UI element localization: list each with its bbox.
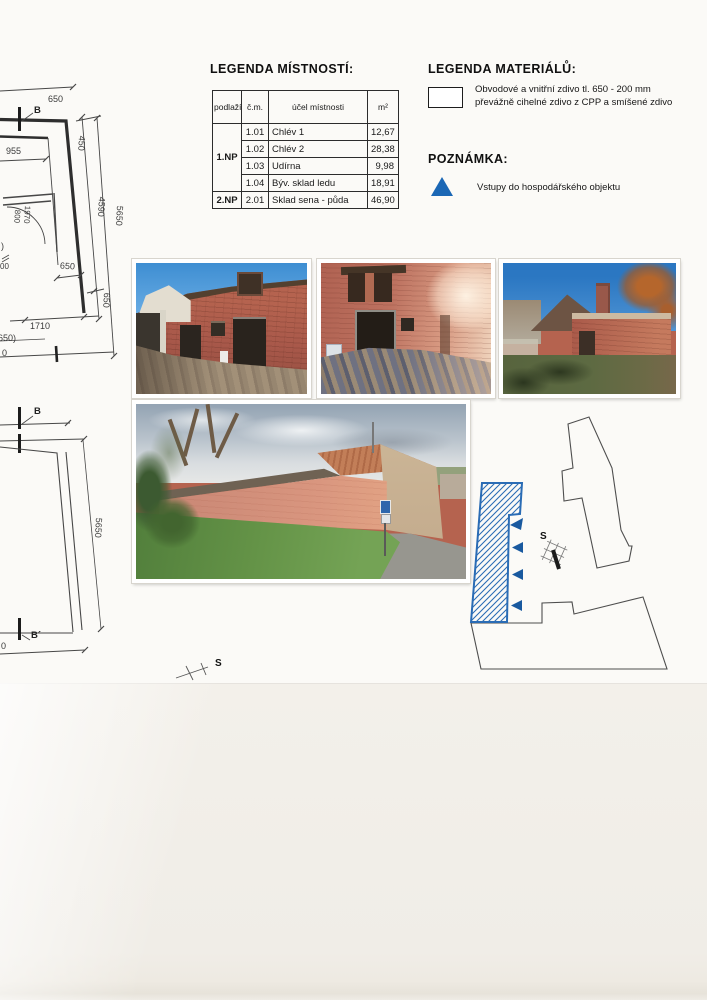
dim-label: 4590 (96, 196, 107, 217)
scanned-drawing-sheet: LEGENDA MÍSTNOSTÍ: LEGENDA MATERIÁLŮ: po… (0, 0, 707, 1000)
entrance-triangle-icons (510, 518, 523, 611)
north-arrow-needle (553, 550, 559, 569)
north-label: S (215, 658, 222, 669)
road-sign-icon (380, 500, 391, 513)
dim-label: 5650 (93, 517, 104, 538)
siteplan (471, 417, 667, 669)
dim-label-cut: ) (1, 241, 4, 251)
dim-label: 650 (101, 292, 112, 308)
photo-street-view (132, 400, 470, 583)
dim-label: 800 (12, 210, 22, 224)
dim-label: 650 (60, 260, 76, 271)
section-marker-b-prime: B´ (31, 630, 41, 641)
scan-paper-bottom (0, 683, 707, 1000)
section-drawing-partial (0, 407, 104, 654)
north-arrow-icon (176, 663, 208, 680)
siteplan-subject-building-hatched (471, 483, 522, 622)
north-label: S (540, 531, 547, 542)
dim-label-cut: 0 (2, 348, 7, 358)
siteplan-neighbor-building (562, 417, 632, 568)
section-marker-b: B (34, 105, 41, 116)
dim-label: 450 (76, 135, 87, 151)
photo-farm-courtyard-1 (132, 259, 311, 398)
dim-label: 1710 (30, 321, 50, 331)
dim-label: 650 (48, 94, 63, 104)
photo-farm-courtyard-2 (317, 259, 495, 398)
section-marker-b: B (34, 406, 41, 417)
photo-farm-exterior (499, 259, 680, 398)
dim-label-cut: 0 (1, 641, 6, 651)
dim-label: 5650 (114, 205, 125, 226)
dim-label-cut: 00 (0, 262, 9, 271)
dim-label: 1970 (22, 206, 32, 224)
dim-label: 955 (6, 146, 21, 156)
dim-label-cut: (650) (0, 333, 16, 343)
